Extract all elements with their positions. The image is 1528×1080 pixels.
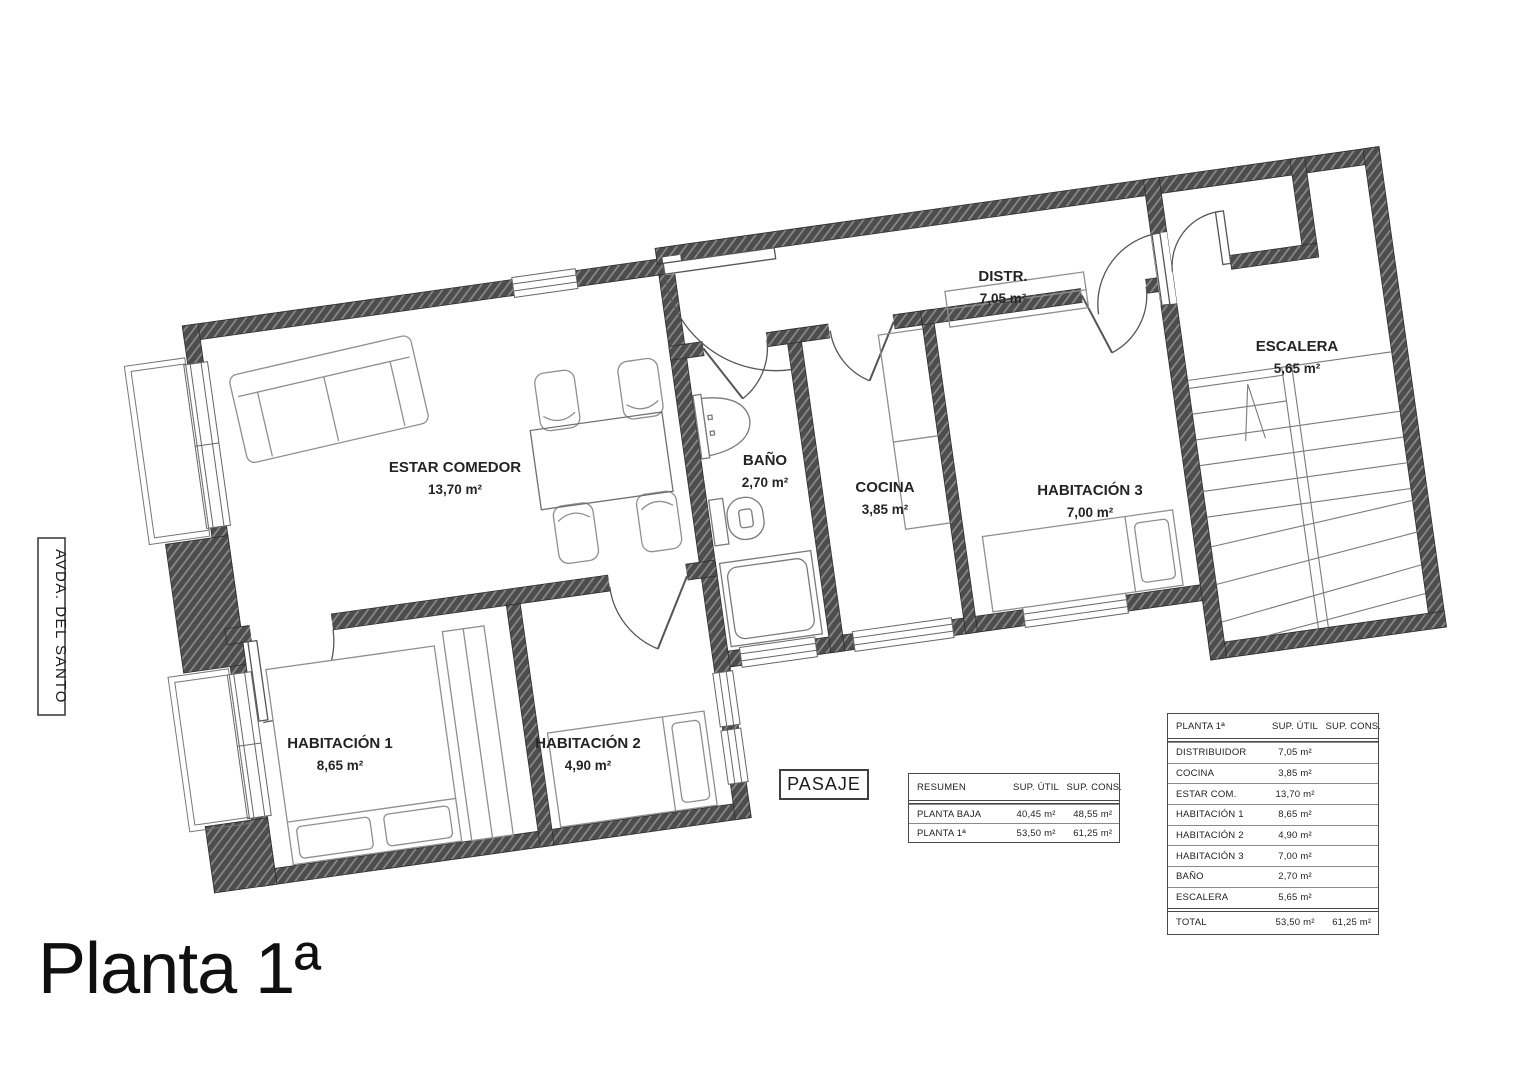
room-label-cocina: COCINA 3,85 m²: [855, 479, 914, 517]
stairs: [1188, 352, 1429, 642]
double-bed-hab1: [266, 646, 462, 865]
room-name: COCINA: [855, 479, 914, 496]
table-cell: 48,55 m²: [1066, 809, 1119, 820]
room-area: 8,65 m²: [317, 758, 364, 773]
table-row: DISTRIBUIDOR7,05 m²: [1168, 742, 1378, 763]
table-cell: 8,65 m²: [1265, 809, 1326, 820]
room-name: DISTR.: [978, 268, 1027, 285]
table-cell: PLANTA BAJA: [909, 809, 1006, 820]
table-cell: ESTAR COM.: [1168, 789, 1265, 800]
window: [713, 671, 740, 727]
table-cell: 3,85 m²: [1265, 768, 1326, 779]
table-row: HABITACIÓN 18,65 m²: [1168, 804, 1378, 825]
table-cell: SUP. CONS.: [1325, 721, 1378, 732]
table-cell: SUP. ÚTIL: [1265, 721, 1326, 732]
street-label: AVDA. DEL SANTO: [38, 538, 69, 715]
passage-label-text: PASAJE: [787, 774, 861, 795]
table-row: BAÑO2,70 m²: [1168, 866, 1378, 887]
wall-segment: [655, 147, 1381, 265]
floor-table: PLANTA 1ªSUP. ÚTILSUP. CONS.DISTRIBUIDOR…: [1167, 713, 1379, 935]
room-area: 5,65 m²: [1274, 361, 1321, 376]
room-name: ESTAR COMEDOR: [389, 459, 521, 476]
table-row: HABITACIÓN 24,90 m²: [1168, 825, 1378, 846]
table-cell: HABITACIÓN 3: [1168, 851, 1265, 862]
window: [512, 269, 578, 298]
wall-segment: [1230, 243, 1319, 269]
page-title: Planta 1ª: [38, 928, 320, 1010]
dining-table-chairs: [523, 357, 683, 566]
table-cell: TOTAL: [1168, 917, 1265, 928]
wall-segment: [920, 309, 977, 633]
room-name: ESCALERA: [1256, 338, 1339, 355]
wall-segment: [506, 604, 554, 848]
room-name: HABITACIÓN 3: [1037, 481, 1143, 499]
table-cell: 53,50 m²: [1265, 917, 1326, 928]
table-row: PLANTA 1ª53,50 m²61,25 m²: [909, 823, 1119, 842]
room-label-estar-comedor: ESTAR COMEDOR 13,70 m²: [389, 459, 521, 497]
table-cell: 2,70 m²: [1265, 871, 1326, 882]
room-area: 2,70 m²: [742, 475, 789, 490]
room-name: HABITACIÓN 2: [535, 734, 641, 752]
wall-segment: [205, 818, 277, 893]
table-cell: RESUMEN: [909, 782, 1006, 793]
table-cell: SUP. CONS.: [1066, 782, 1119, 793]
room-area: 4,90 m²: [565, 758, 612, 773]
table-cell: 53,50 m²: [1006, 828, 1067, 839]
table-cell: 4,90 m²: [1265, 830, 1326, 841]
table-cell: HABITACIÓN 1: [1168, 809, 1265, 820]
table-cell: SUP. ÚTIL: [1006, 782, 1067, 793]
table-cell: 7,05 m²: [1265, 747, 1326, 758]
sofa: [228, 334, 429, 464]
summary-table: RESUMENSUP. ÚTILSUP. CONS.PLANTA BAJA40,…: [908, 773, 1120, 843]
table-cell: 5,65 m²: [1265, 892, 1326, 903]
table-cell: DISTRIBUIDOR: [1168, 747, 1265, 758]
room-name: BAÑO: [743, 451, 787, 469]
room-label-habitacion-3: HABITACIÓN 3 7,00 m²: [1037, 481, 1143, 520]
table-row: COCINA3,85 m²: [1168, 763, 1378, 784]
toilet-icon: [709, 493, 767, 546]
wall-segment: [182, 256, 682, 342]
table-row: ESTAR COM.13,70 m²: [1168, 783, 1378, 804]
wall-segment: [166, 536, 246, 674]
room-area: 7,00 m²: [1067, 505, 1114, 520]
window: [184, 362, 231, 529]
room-area: 13,70 m²: [428, 482, 483, 497]
table-cell: 61,25 m²: [1325, 917, 1378, 928]
wall-segment: [1363, 147, 1446, 630]
table-cell: HABITACIÓN 2: [1168, 830, 1265, 841]
window: [721, 728, 748, 784]
table-header-row: RESUMENSUP. ÚTILSUP. CONS.: [909, 774, 1119, 804]
table-cell: 40,45 m²: [1006, 809, 1067, 820]
table-cell: COCINA: [1168, 768, 1265, 779]
passage-label: PASAJE: [779, 769, 869, 800]
room-label-bano: BAÑO 2,70 m²: [742, 451, 789, 490]
room-area: 3,85 m²: [862, 502, 909, 517]
floor-plan-page: ESTAR COMEDOR 13,70 m² BAÑO 2,70 m² COCI…: [0, 0, 1528, 1080]
table-cell: ESCALERA: [1168, 892, 1265, 903]
room-label-distribuidor: DISTR. 7,05 m²: [978, 268, 1027, 306]
table-row: PLANTA BAJA40,45 m²48,55 m²: [909, 804, 1119, 823]
room-name: HABITACIÓN 1: [287, 734, 393, 752]
table-cell: BAÑO: [1168, 871, 1265, 882]
table-header-row: PLANTA 1ªSUP. ÚTILSUP. CONS.: [1168, 714, 1378, 742]
door-closet: [1165, 211, 1231, 272]
table-cell: PLANTA 1ª: [1168, 721, 1265, 732]
room-area: 7,05 m²: [980, 291, 1027, 306]
sink-icon: [693, 388, 754, 459]
door-escalera: [1089, 233, 1170, 314]
table-row: ESCALERA5,65 m²: [1168, 887, 1378, 908]
table-cell: 13,70 m²: [1265, 789, 1326, 800]
table-cell: 61,25 m²: [1066, 828, 1119, 839]
room-label-escalera: ESCALERA 5,65 m²: [1256, 338, 1339, 376]
street-label-text: AVDA. DEL SANTO: [52, 549, 69, 704]
bathtub: [720, 551, 823, 647]
table-cell: PLANTA 1ª: [909, 828, 1006, 839]
table-total-row: TOTAL53,50 m²61,25 m²: [1168, 908, 1378, 934]
table-cell: 7,00 m²: [1265, 851, 1326, 862]
window: [852, 618, 954, 652]
table-row: HABITACIÓN 37,00 m²: [1168, 845, 1378, 866]
